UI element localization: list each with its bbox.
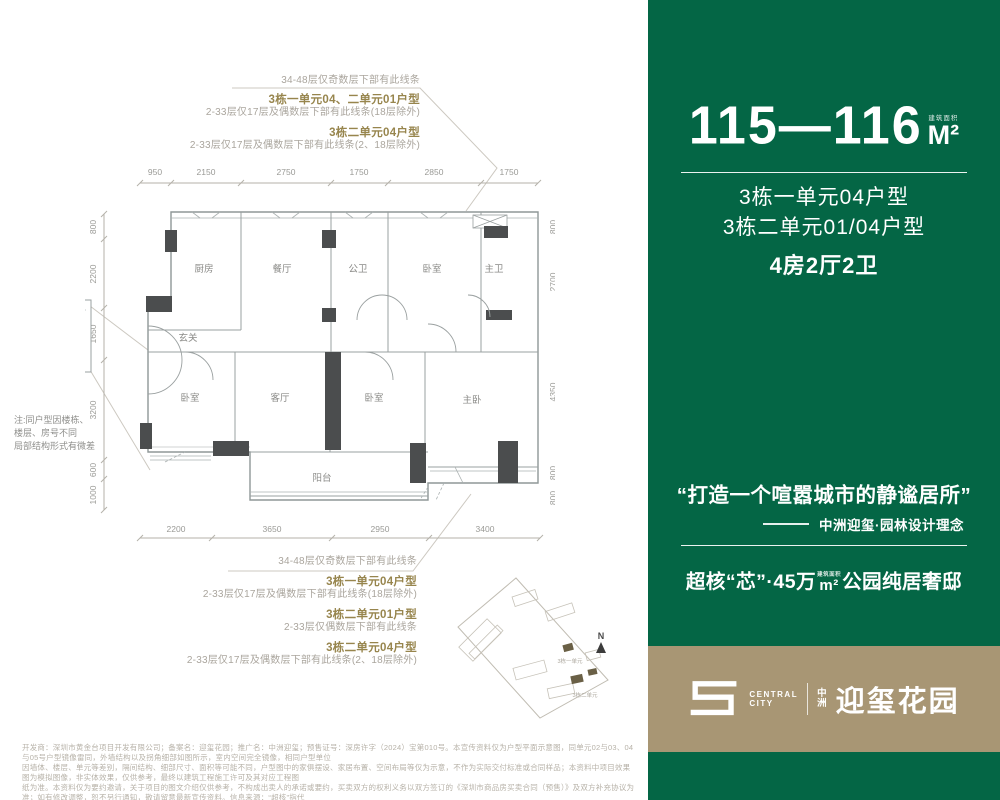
annotation-line: 34-48层仅奇数层下部有此线条 [190,75,420,87]
annotation-heading: 3栋一单元04、二单元01户型 [190,94,420,107]
brand-bar: CENTRAL CITY 中 洲 迎玺花园 [648,646,1000,752]
dim-label: 800 [548,491,555,505]
annotation-line: 2-33层仅17层及偶数层下部有此线条(18层除外) [190,107,420,119]
disclaimer-line: 纸为准。本资料仅为要约邀请，关于项目的图文介绍仅供参考，不构成出卖人的承诺或要约… [22,783,636,800]
annotation-line: 2-33层仅17层及偶数层下部有此线条(2、18层除外) [187,655,417,667]
plan-note-line: 注:同户型因楼栋、 [14,414,95,427]
dim-label: 800 [88,220,98,234]
room-label: 主卫 [484,263,504,275]
annotation-line: 2-33层仅17层及偶数层下部有此线条(2、18层除外) [190,140,420,152]
wall-detail-box [85,300,91,372]
dim-label: 2700 [548,272,555,291]
dim-label: 2200 [88,264,98,283]
brand-s-logo-icon [688,678,740,720]
room-label: 卧室 [180,392,199,404]
dim-label: 2950 [371,524,390,534]
slogan-pre: 超核“芯”·45万 [686,565,816,594]
dim-label: 2850 [425,167,444,177]
slogan: 超核“芯”·45万 建筑面积 m² 公园纯居奢邸 [648,565,1000,594]
annotation-line: 2-33层仅17层及偶数层下部有此线条(18层除外) [187,589,417,601]
dash-line [763,523,809,525]
dim-label: 2150 [197,167,216,177]
dim-label: 1750 [500,167,519,177]
flyer-page: 34-48层仅奇数层下部有此线条 3栋一单元04、二单元01户型 2-33层仅1… [0,0,1000,800]
dim-label: 1000 [88,485,98,504]
slogan-post: 公园纯居奢邸 [842,565,962,594]
brand-en-name: CENTRAL CITY [749,690,798,708]
room-label: 卧室 [364,392,383,404]
disclaimer: 开发商：深圳市黄金台项目开发有限公司；备案名：迎玺花园；推广名：中洲迎玺；预售证… [22,743,636,800]
dim-label: 1750 [350,167,369,177]
area-unit-note: 建筑面积 [928,115,958,122]
brand-cn-char: 洲 [817,699,827,710]
dim-label: 800 [548,466,555,480]
area-unit-stack: 建筑面积 M² [928,115,959,149]
annotation-heading: 3栋二单元04户型 [190,127,420,140]
annotation-heading: 3栋二单元04户型 [187,642,417,655]
dim-label: 600 [88,463,98,477]
north-label: N [598,631,605,641]
annotation-heading: 3栋二单元01户型 [187,609,417,622]
room-label: 公卫 [348,264,368,275]
unit-type-line-1: 3栋一单元04户型 [648,181,1000,211]
room-label: 餐厅 [272,263,292,275]
plan-note-line: 局部结构形式有微差 [14,440,95,453]
disclaimer-line: 因墙体、楼层、单元等差别，隔间结构、细部尺寸、面积等可能不同，户型图中的家俱摆设… [22,763,636,783]
quote-source: 中洲迎玺·园林设计理念 [819,514,964,534]
slogan-unit-note: 建筑面积 [817,572,841,578]
dim-label: 2200 [167,524,186,534]
annotation-block-top: 34-48层仅奇数层下部有此线条 3栋一单元04、二单元01户型 2-33层仅1… [190,75,420,152]
unit-type-line-2: 3栋二单元01/04户型 [648,211,1000,241]
room-label: 玄关 [178,332,198,344]
annotation-heading: 3栋一单元04户型 [187,576,417,589]
room-count: 4房2厅2卫 [648,248,1000,280]
plan-note-line: 楼层、房号不同 [14,427,95,440]
dim-label: 4350 [548,382,555,401]
dim-label: 2750 [277,167,296,177]
dim-label: 950 [148,167,162,177]
plan-note: 注:同户型因楼栋、 楼层、房号不同 局部结构形式有微差 [14,414,95,453]
quote-source-row: 中洲迎玺·园林设计理念 [648,514,1000,534]
dim-label: 800 [548,220,555,234]
site-label: 3栋二单元 [572,691,598,699]
outer-walls [148,212,538,500]
disclaimer-line: 开发商：深圳市黄金台项目开发有限公司；备案名：迎玺花园；推广名：中洲迎玺；预售证… [22,743,636,763]
dim-label: 3400 [476,524,495,534]
floorplan-drawing: 950 2150 2750 1750 2850 1750 2200 3650 2… [85,158,555,560]
brand-cn-small: 中 洲 [817,689,827,710]
logo-divider [807,683,808,715]
area-range: 115—116 [689,99,923,153]
annotation-block-bottom: 34-48层仅奇数层下部有此线条 3栋一单元04户型 2-33层仅17层及偶数层… [187,556,417,667]
room-label: 客厅 [270,392,290,404]
room-label: 厨房 [194,263,213,275]
info-panel: 115—116 建筑面积 M² 3栋一单元04户型 3栋二单元01/04户型 4… [648,0,1000,800]
slogan-unit: m² [819,578,838,593]
room-label: 阳台 [312,472,331,484]
site-label: 3栋一单元 [557,657,583,665]
brand-cn-name: 迎玺花园 [836,678,960,720]
north-arrow: N [596,631,606,653]
slogan-unit-stack: 建筑面积 m² [817,572,841,593]
floorplan-section: 34-48层仅奇数层下部有此线条 3栋一单元04、二单元01户型 2-33层仅1… [0,0,648,800]
area-unit: M² [928,122,959,149]
brand-en-line2: CITY [749,699,798,708]
divider-line [681,545,967,546]
room-label: 卧室 [422,263,441,275]
brand-en-line1: CENTRAL [749,690,798,699]
site-map: 3栋一单元 3栋二单元 N [452,572,648,740]
divider-line [681,172,967,173]
room-label: 主卧 [462,394,482,406]
area-title: 115—116 建筑面积 M² [648,100,1000,152]
annotation-line: 34-48层仅奇数层下部有此线条 [187,556,417,568]
annotation-line: 2-33层仅偶数层下部有此线条 [187,622,417,634]
dim-label: 3650 [263,524,282,534]
design-quote: “打造一个喧嚣城市的静谧居所” [648,478,1000,508]
